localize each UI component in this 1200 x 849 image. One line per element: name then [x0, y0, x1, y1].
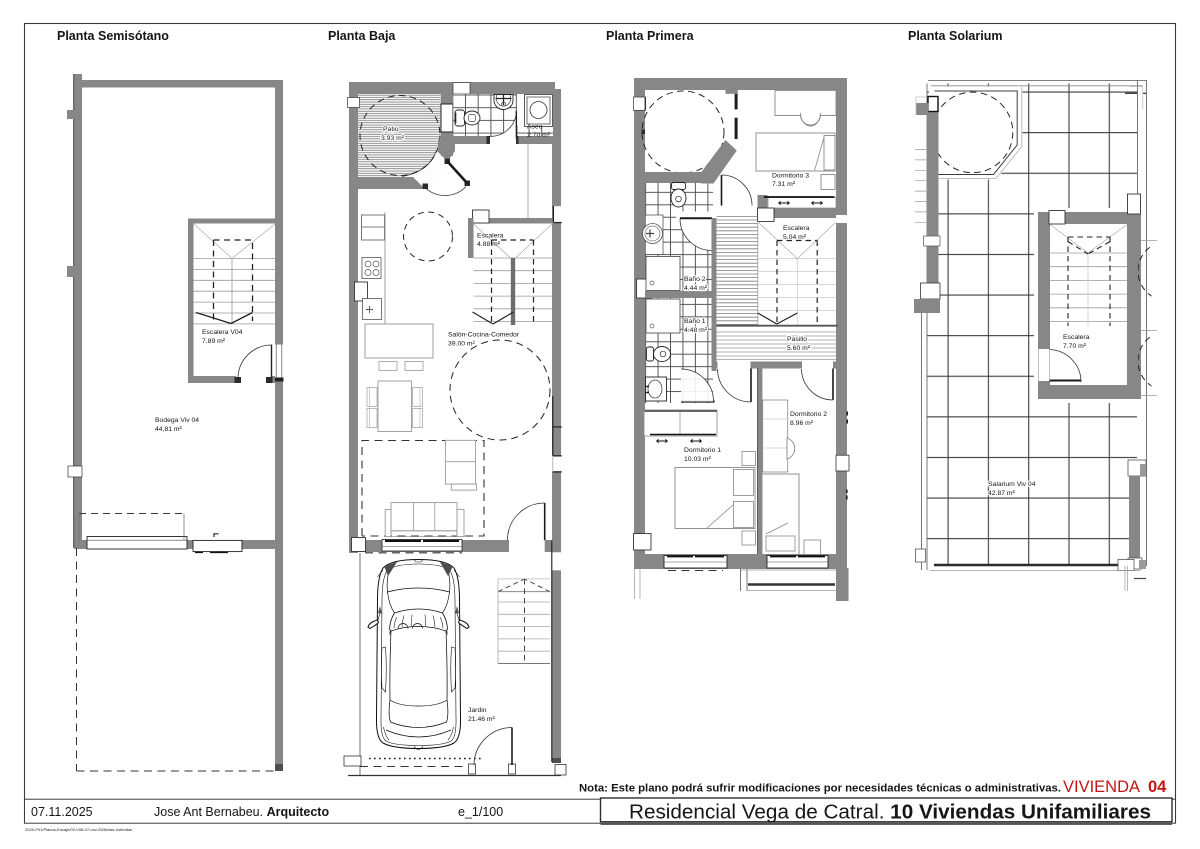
svg-text:Dormitorio 1: Dormitorio 1: [684, 447, 721, 454]
svg-text:4.44 m²: 4.44 m²: [684, 285, 708, 292]
svg-text:e_1/100: e_1/100: [458, 805, 503, 819]
svg-text:10.03 m²: 10.03 m²: [684, 456, 712, 463]
svg-text:07.11.2025: 07.11.2025: [31, 805, 93, 819]
svg-text:Escalera: Escalera: [1063, 334, 1090, 341]
svg-text:39.00 m²: 39.00 m²: [448, 341, 476, 348]
svg-text:Baño 1: Baño 1: [684, 318, 706, 325]
svg-text:Residencial Vega de Catral. 10: Residencial Vega de Catral. 10 Viviendas…: [629, 801, 1151, 824]
svg-text:42.87 m²: 42.87 m²: [988, 490, 1016, 497]
svg-text:Bodega Viv 04: Bodega Viv 04: [155, 417, 199, 424]
svg-text:Planta Baja: Planta Baja: [328, 29, 396, 43]
svg-text:4.48 m²: 4.48 m²: [684, 327, 708, 334]
svg-text:VIVIENDA: VIVIENDA: [1063, 778, 1140, 796]
svg-text:Baño 2: Baño 2: [684, 276, 706, 283]
svg-text:21.46 m²: 21.46 m²: [468, 716, 496, 723]
svg-text:8.96 m²: 8.96 m²: [790, 420, 814, 427]
svg-text:Escalera V04: Escalera V04: [202, 329, 243, 336]
svg-text:7.89 m²: 7.89 m²: [202, 338, 226, 345]
svg-text:5.04 m²: 5.04 m²: [783, 234, 807, 241]
svg-text:44,81 m²: 44,81 m²: [155, 426, 183, 433]
svg-text:Planta Solarium: Planta Solarium: [908, 29, 1002, 43]
svg-text:7.70 m²: 7.70 m²: [1063, 343, 1087, 350]
svg-text:Planta Primera: Planta Primera: [606, 29, 695, 43]
svg-text:Jose Ant Bernabeu. Arquitecto: Jose Ant Bernabeu. Arquitecto: [154, 805, 329, 819]
svg-text:Planta Semisótano: Planta Semisótano: [57, 29, 169, 43]
svg-text:7.31 m²: 7.31 m²: [772, 181, 796, 188]
svg-text:2025-P01/Planos-Encaje/03-V08-: 2025-P01/Planos-Encaje/03-V08-07-nov-25/…: [25, 827, 132, 832]
svg-text:3.93 m²: 3.93 m²: [381, 135, 405, 142]
svg-text:Escalera: Escalera: [783, 225, 810, 232]
svg-text:2.70 m²: 2.70 m²: [527, 132, 551, 139]
svg-text:Dormitorio 2: Dormitorio 2: [790, 411, 827, 418]
svg-text:Jardin: Jardin: [468, 707, 487, 714]
svg-text:Patio: Patio: [383, 126, 399, 133]
svg-text:Escalera: Escalera: [477, 233, 504, 240]
svg-text:Dormitorio 3: Dormitorio 3: [772, 173, 809, 180]
svg-text:4.88 m²: 4.88 m²: [477, 241, 501, 248]
svg-text:04: 04: [1148, 778, 1167, 796]
svg-text:5.60 m²: 5.60 m²: [787, 345, 811, 352]
svg-text:Salarium Viv 04: Salarium Viv 04: [988, 481, 1036, 488]
svg-text:Nota: Este plano podrá sufrir: Nota: Este plano podrá sufrir modificaci…: [579, 783, 1061, 795]
svg-text:Salón-Cocina-Comedor: Salón-Cocina-Comedor: [448, 332, 520, 339]
svg-text:Aseo: Aseo: [527, 124, 543, 131]
svg-text:Pasillo: Pasillo: [787, 336, 807, 343]
